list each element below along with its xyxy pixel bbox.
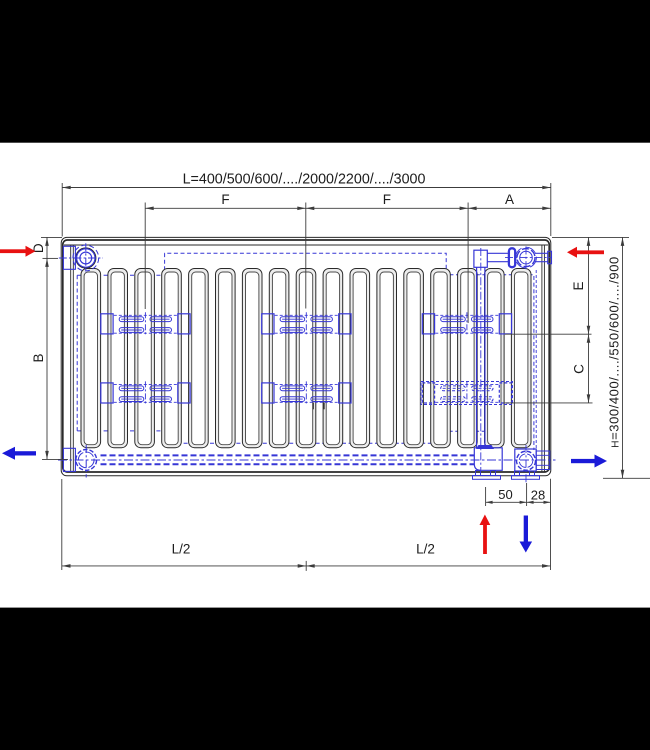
svg-text:50: 50 [498,487,512,502]
svg-text:E: E [571,281,586,290]
svg-text:F: F [221,192,229,207]
svg-text:L=400/500/600/..../2000/2200/.: L=400/500/600/..../2000/2200/..../3000 [183,172,426,188]
svg-text:F: F [383,192,391,207]
svg-text:L/2: L/2 [172,542,191,557]
svg-text:B: B [31,353,46,362]
svg-text:H=300/400/..../550/600/..../90: H=300/400/..../550/600/..../900 [607,256,622,448]
svg-text:C: C [572,364,587,374]
svg-text:28: 28 [531,487,545,502]
svg-text:L/2: L/2 [416,542,435,557]
svg-text:A: A [505,192,514,207]
